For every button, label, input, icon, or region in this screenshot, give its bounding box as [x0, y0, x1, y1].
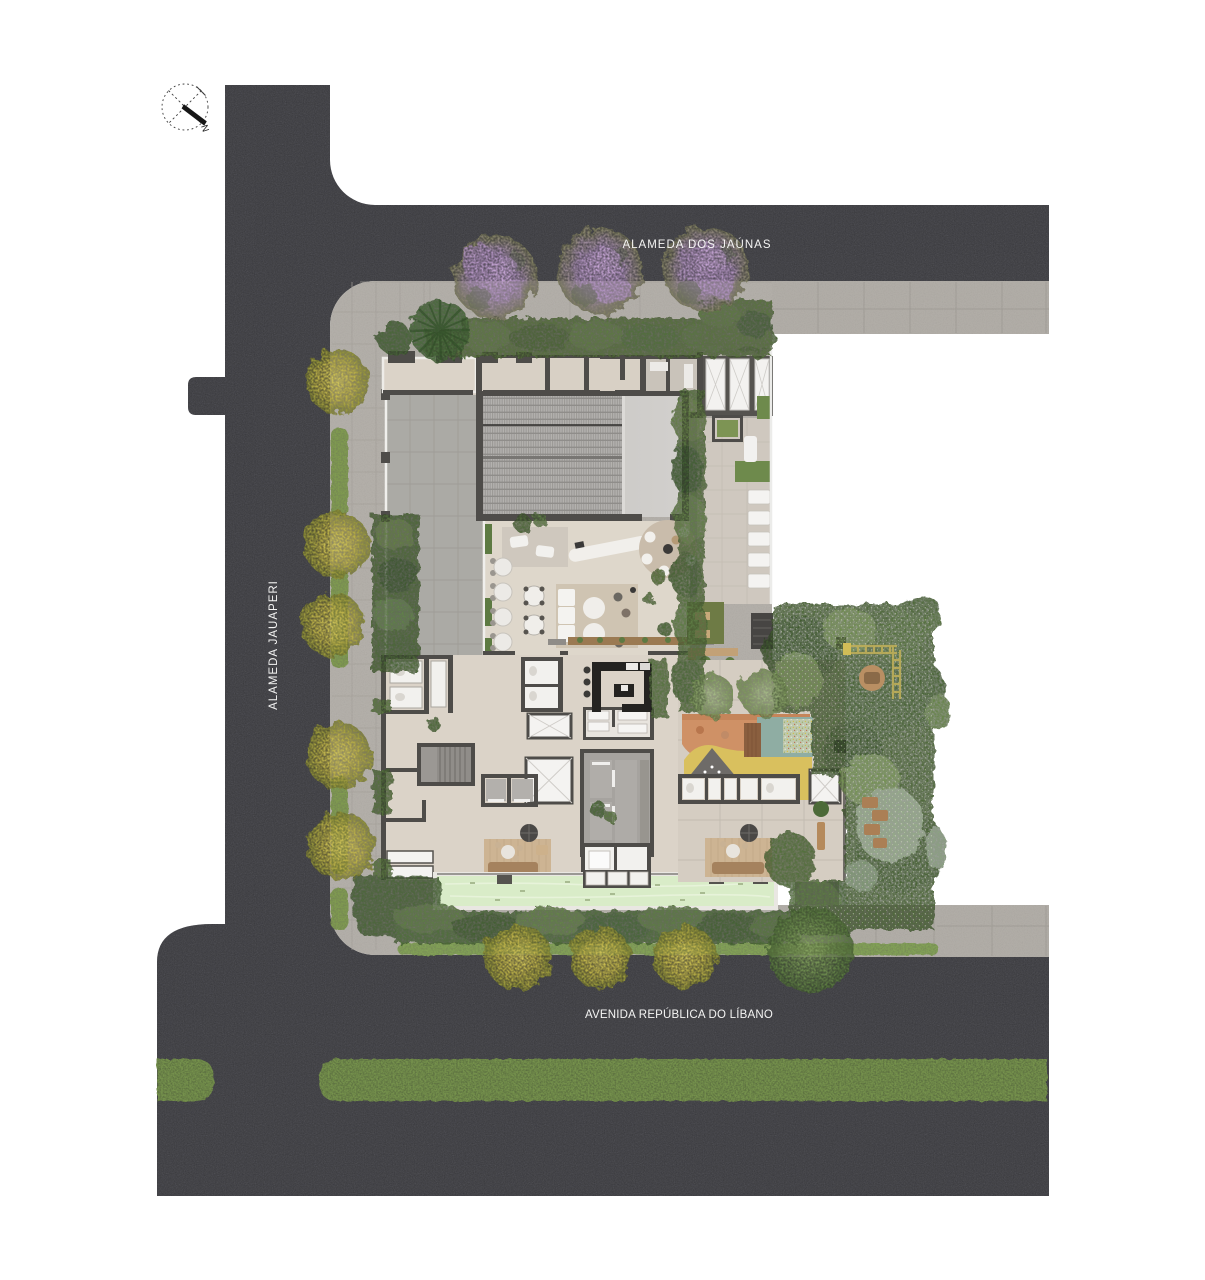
- svg-text:AVENIDA REPÚBLICA DO LÍBANO: AVENIDA REPÚBLICA DO LÍBANO: [585, 1008, 773, 1021]
- svg-text:ALAMEDA DOS JAÚNAS: ALAMEDA DOS JAÚNAS: [622, 238, 771, 251]
- svg-text:ALAMEDA JAUAPERI: ALAMEDA JAUAPERI: [268, 580, 280, 710]
